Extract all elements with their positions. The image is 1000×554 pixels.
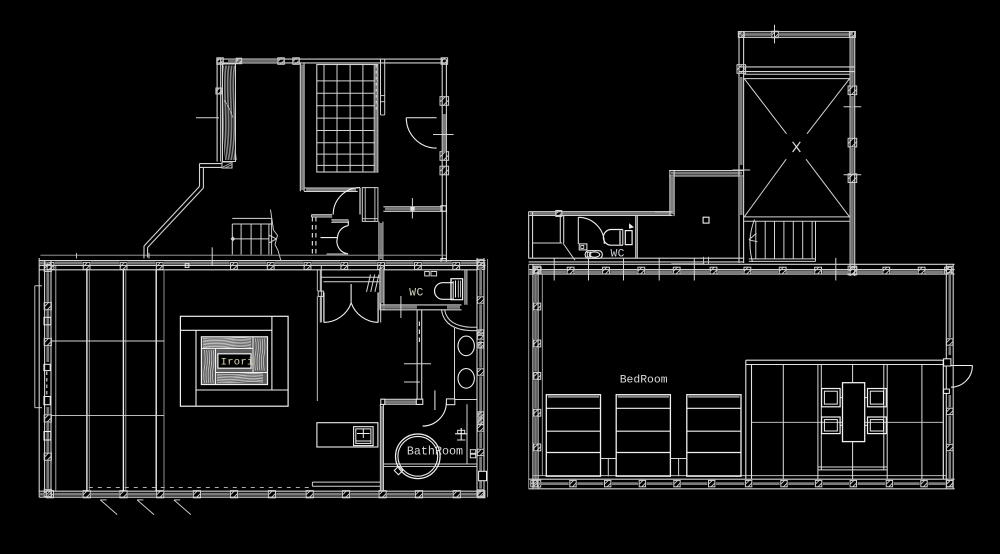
svg-text:BathRoom: BathRoom xyxy=(407,444,463,458)
svg-text:BedRoom: BedRoom xyxy=(620,374,668,386)
svg-text:WC: WC xyxy=(409,288,423,300)
svg-text:Irori: Irori xyxy=(221,357,254,369)
